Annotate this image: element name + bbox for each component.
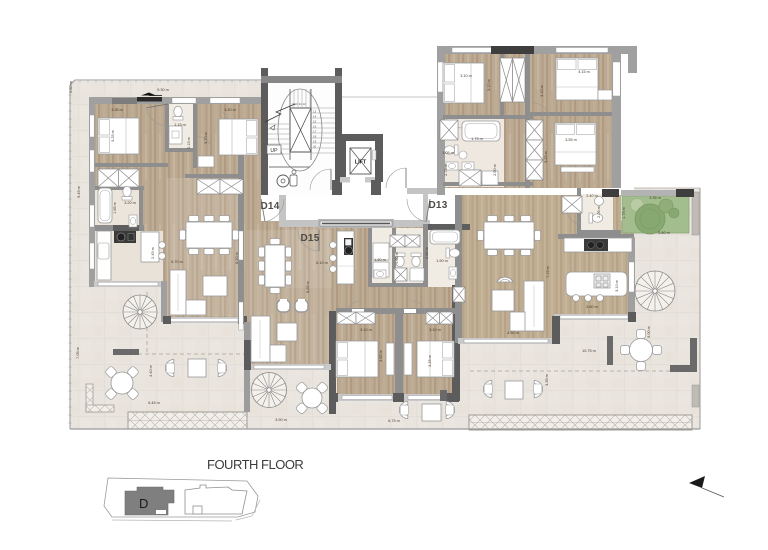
svg-text:3.10 m: 3.10 m [615, 280, 619, 292]
svg-text:3.60 m: 3.60 m [586, 305, 598, 309]
svg-text:1.60 m: 1.60 m [395, 252, 399, 264]
svg-text:LIFT: LIFT [355, 160, 367, 166]
svg-text:3.10 m: 3.10 m [429, 328, 441, 332]
svg-text:1.75 m: 1.75 m [471, 137, 483, 141]
svg-text:2.60 m: 2.60 m [658, 231, 670, 235]
svg-text:6.70 m: 6.70 m [171, 260, 183, 264]
svg-text:3.25 m: 3.25 m [111, 130, 115, 142]
svg-text:2.50 m: 2.50 m [493, 164, 497, 176]
svg-text:3.10 m: 3.10 m [540, 85, 544, 97]
svg-text:3.70 m: 3.70 m [204, 132, 208, 144]
svg-text:2.60 m: 2.60 m [425, 247, 429, 259]
svg-text:3.20 m: 3.20 m [224, 108, 236, 112]
svg-text:20: 20 [313, 145, 317, 149]
svg-text:7.15 m: 7.15 m [546, 266, 550, 278]
svg-text:4.40 m: 4.40 m [149, 365, 153, 377]
svg-text:9 10 11 12: 9 10 11 12 [292, 102, 306, 106]
svg-text:9.30 m: 9.30 m [157, 88, 169, 92]
svg-text:3.65 m: 3.65 m [379, 350, 383, 362]
svg-text:9.45 m: 9.45 m [77, 186, 81, 198]
svg-text:1.65 m: 1.65 m [113, 202, 117, 214]
svg-text:14: 14 [313, 115, 317, 119]
svg-text:6.65 m: 6.65 m [306, 281, 310, 293]
svg-text:FOURTH FLOOR: FOURTH FLOOR [207, 457, 303, 472]
svg-text:9.00 m: 9.00 m [647, 326, 651, 338]
svg-text:3.25 m: 3.25 m [544, 151, 548, 163]
svg-text:3.10 m: 3.10 m [360, 328, 372, 332]
svg-text:4.50 m: 4.50 m [507, 331, 519, 335]
svg-text:6.75 m: 6.75 m [388, 419, 400, 423]
svg-text:1.50 m: 1.50 m [374, 258, 386, 262]
svg-text:16: 16 [313, 125, 317, 129]
svg-text:3.35 m: 3.35 m [111, 108, 123, 112]
svg-text:2.40 m: 2.40 m [586, 194, 598, 198]
svg-text:6.45 m: 6.45 m [148, 401, 160, 405]
svg-text:2.45 m: 2.45 m [151, 247, 155, 259]
svg-text:7.05 m: 7.05 m [76, 347, 80, 359]
svg-text:2.15 m: 2.15 m [187, 137, 191, 149]
svg-text:2.75 m: 2.75 m [444, 164, 448, 176]
svg-text:3.90 m: 3.90 m [275, 418, 287, 422]
svg-text:3.25 m: 3.25 m [428, 355, 432, 367]
svg-text:1.15 m: 1.15 m [174, 123, 186, 127]
svg-text:3.35 m: 3.35 m [545, 374, 549, 386]
svg-text:3.10 m: 3.10 m [487, 79, 491, 91]
svg-text:10.75 m: 10.75 m [582, 349, 596, 353]
svg-text:D14: D14 [261, 201, 280, 212]
svg-text:D15: D15 [301, 233, 320, 244]
svg-text:15: 15 [313, 120, 317, 124]
svg-text:6.20 m: 6.20 m [235, 252, 239, 264]
svg-text:1.90 m: 1.90 m [436, 259, 448, 263]
svg-text:D: D [139, 496, 148, 511]
svg-text:6.10 m: 6.10 m [316, 261, 328, 265]
svg-text:19: 19 [313, 140, 317, 144]
svg-text:0.80 m: 0.80 m [69, 81, 73, 93]
svg-text:3.20 m: 3.20 m [124, 201, 136, 205]
svg-text:17: 17 [313, 130, 317, 134]
svg-text:UP: UP [270, 148, 278, 154]
svg-text:4.15 m: 4.15 m [578, 70, 590, 74]
svg-text:3.55 m: 3.55 m [565, 138, 577, 142]
svg-text:2.05 m: 2.05 m [597, 206, 601, 218]
svg-text:18: 18 [313, 135, 317, 139]
svg-text:3.10 m: 3.10 m [460, 74, 472, 78]
svg-text:1.05 m: 1.05 m [442, 151, 454, 155]
svg-text:D13: D13 [429, 200, 448, 211]
svg-text:1.75 m: 1.75 m [622, 207, 626, 219]
svg-text:13: 13 [313, 110, 317, 114]
svg-text:3.35 m: 3.35 m [649, 196, 661, 200]
